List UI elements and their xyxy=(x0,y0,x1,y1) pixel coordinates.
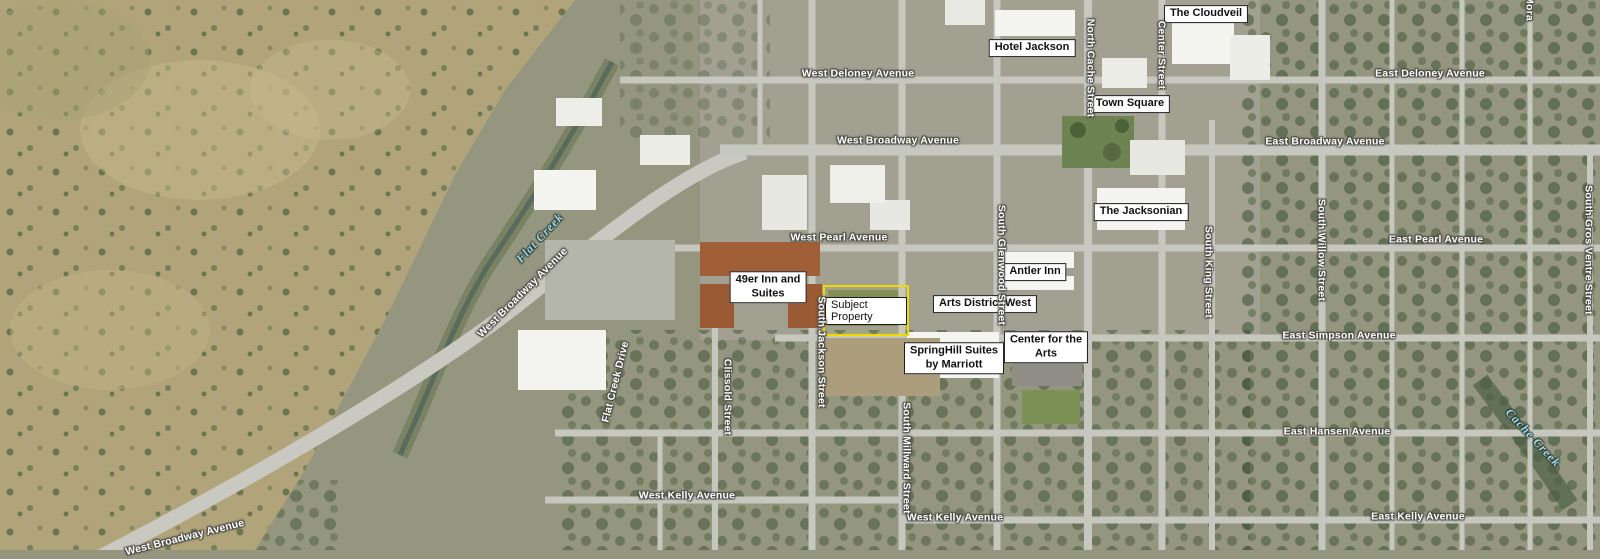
landmark-label-the-jacksonian: The Jacksonian xyxy=(1094,203,1189,221)
street-label-west-deloney-avenue: West Deloney Avenue xyxy=(802,67,915,80)
landmark-label-hotel-jackson: Hotel Jackson xyxy=(989,39,1076,57)
street-label-clissold-street: Clissold Street xyxy=(720,359,733,436)
street-label-east-hansen-avenue: East Hansen Avenue xyxy=(1284,425,1391,438)
landmark-label-center-for-the-arts: Center for the Arts xyxy=(1004,331,1088,363)
street-label-east-pearl-avenue: East Pearl Avenue xyxy=(1389,233,1483,246)
street-label-south-jackson-street: South Jackson Street xyxy=(814,296,827,407)
street-label-south-king-street: South King Street xyxy=(1201,226,1214,318)
street-label-center-street: Center Street xyxy=(1154,21,1167,90)
street-label-east-deloney-avenue: East Deloney Avenue xyxy=(1375,67,1485,80)
landmark-label-town-square: Town Square xyxy=(1090,95,1170,113)
landmark-label-antler-inn: Antler Inn xyxy=(1003,263,1066,281)
landmark-label-49er-inn-and-suites: 49er Inn and Suites xyxy=(730,271,807,303)
street-label-south-millward-street: South Millward Street xyxy=(899,402,912,514)
street-label-west-broadway-avenue: West Broadway Avenue xyxy=(475,245,571,341)
street-label-flat-creek-drive: Flat Creek Drive xyxy=(600,340,633,424)
street-label-west-kelly-avenue: West Kelly Avenue xyxy=(639,489,735,502)
water-label-cache-creek: Cache Creek xyxy=(1502,406,1564,471)
aerial-map: Subject Property The CloudveilHotel Jack… xyxy=(0,0,1600,550)
street-label-west-broadway-avenue: West Broadway Avenue xyxy=(837,134,959,147)
street-label-mora: Mora xyxy=(1522,0,1535,21)
street-label-south-willow-street: South Willow Street xyxy=(1314,199,1327,301)
street-label-west-kelly-avenue: West Kelly Avenue xyxy=(907,511,1003,524)
street-label-west-broadway-avenue: West Broadway Avenue xyxy=(124,517,246,559)
street-label-west-pearl-avenue: West Pearl Avenue xyxy=(791,231,888,244)
street-label-south-gros-ventre-street: South Gros Ventre Street xyxy=(1581,185,1594,315)
street-label-east-kelly-avenue: East Kelly Avenue xyxy=(1371,510,1465,523)
landmark-label-arts-district-west: Arts District West xyxy=(933,295,1037,313)
landmark-label-the-cloudveil: The Cloudveil xyxy=(1164,5,1248,23)
street-label-east-simpson-avenue: East Simpson Avenue xyxy=(1282,329,1395,342)
street-label-north-cache-street: North Cache Street xyxy=(1083,19,1096,118)
landmark-label-springhill-suites-by-marriott: SpringHill Suites by Marriott xyxy=(904,342,1004,374)
street-label-south-glenwood-street: South Glenwood Street xyxy=(994,205,1007,325)
label-layer: The CloudveilHotel JacksonTown SquareThe… xyxy=(0,0,1600,550)
water-label-flat-creek: Flat Creek xyxy=(513,210,567,266)
street-label-east-broadway-avenue: East Broadway Avenue xyxy=(1265,135,1384,148)
